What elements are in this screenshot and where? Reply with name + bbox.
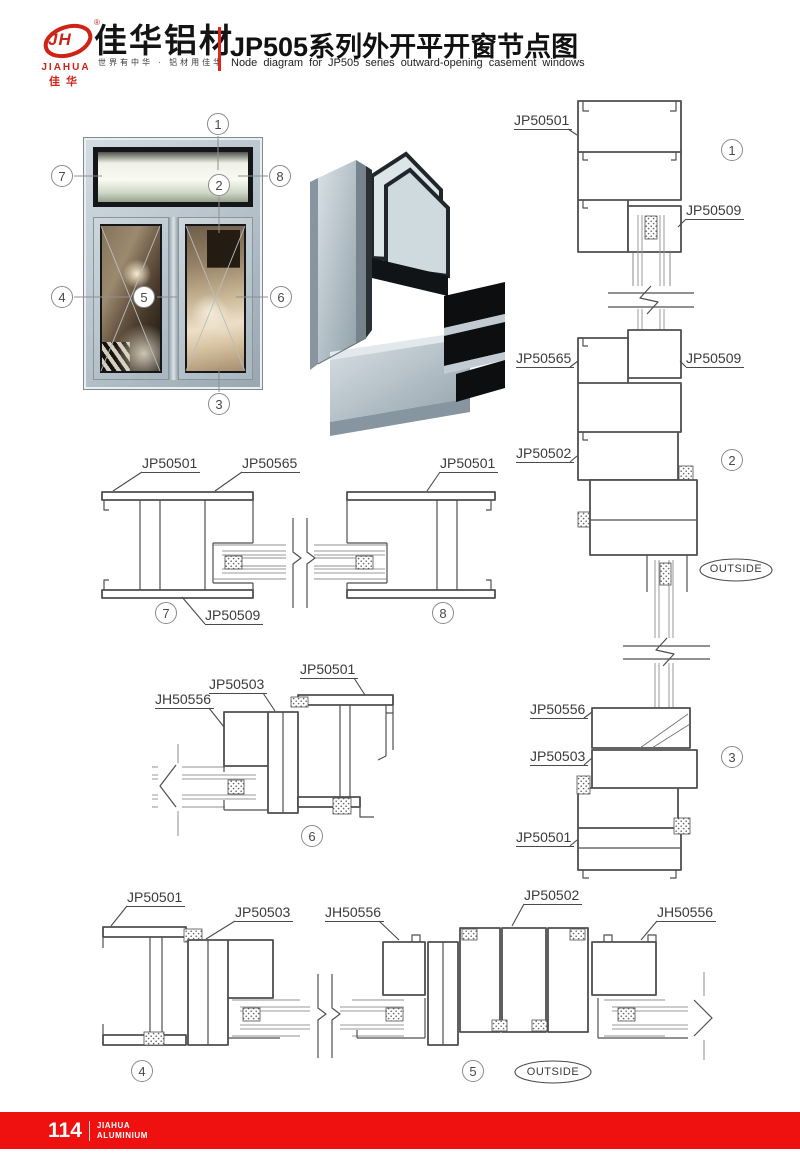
part-label: JP50501 <box>142 455 200 473</box>
part-label: JH50556 <box>657 904 716 922</box>
callout-7: 7 <box>51 165 73 187</box>
part-label: JP50502 <box>516 445 574 463</box>
catalog-page: JH ® JIAHUA 佳华 佳华铝材 世界有中华 · 铝材用佳华 JP505系… <box>0 0 800 1167</box>
part-label: JP50565 <box>516 350 574 368</box>
detail-circle-1: 1 <box>721 139 743 161</box>
part-label: JP50509 <box>686 350 744 368</box>
detail-circle-8: 8 <box>432 602 454 624</box>
detail-circle-5: 5 <box>462 1060 484 1082</box>
part-label: JP50503 <box>530 748 588 766</box>
part-label: JP50502 <box>524 887 582 905</box>
part-label: JP50509 <box>205 607 263 625</box>
photo-callout-leaders <box>74 136 268 392</box>
callout-2: 2 <box>208 174 230 196</box>
outside-label: OUTSIDE <box>517 1066 589 1078</box>
part-label: JH50556 <box>325 904 384 922</box>
detail-circle-4: 4 <box>131 1060 153 1082</box>
part-label: JP50501 <box>127 889 185 907</box>
part-label: JP50509 <box>686 202 744 220</box>
part-label: JP50501 <box>516 829 574 847</box>
part-label: JH50556 <box>155 691 214 709</box>
mid-section-strip <box>102 472 495 624</box>
callout-3: 3 <box>208 393 230 415</box>
callout-5: 5 <box>133 286 155 308</box>
profile-3d-render <box>310 154 505 436</box>
part-label: JP50501 <box>300 661 358 679</box>
callout-6: 6 <box>270 286 292 308</box>
technical-line-art <box>0 0 800 1167</box>
callout-1: 1 <box>207 113 229 135</box>
callout-4: 4 <box>51 286 73 308</box>
bottom-section-strip <box>103 904 714 1083</box>
part-label: JP50503 <box>209 676 267 694</box>
part-label: JP50501 <box>514 112 572 130</box>
part-label: JP50501 <box>440 455 498 473</box>
part-label: JP50556 <box>530 701 588 719</box>
part-label: JP50565 <box>242 455 300 473</box>
detail-circle-6: 6 <box>301 825 323 847</box>
detail-circle-7: 7 <box>155 602 177 624</box>
part-label: JP50503 <box>235 904 293 922</box>
detail-circle-2: 2 <box>721 449 743 471</box>
outside-label: OUTSIDE <box>700 563 772 575</box>
detail-circle-3: 3 <box>721 746 743 768</box>
callout-8: 8 <box>269 165 291 187</box>
